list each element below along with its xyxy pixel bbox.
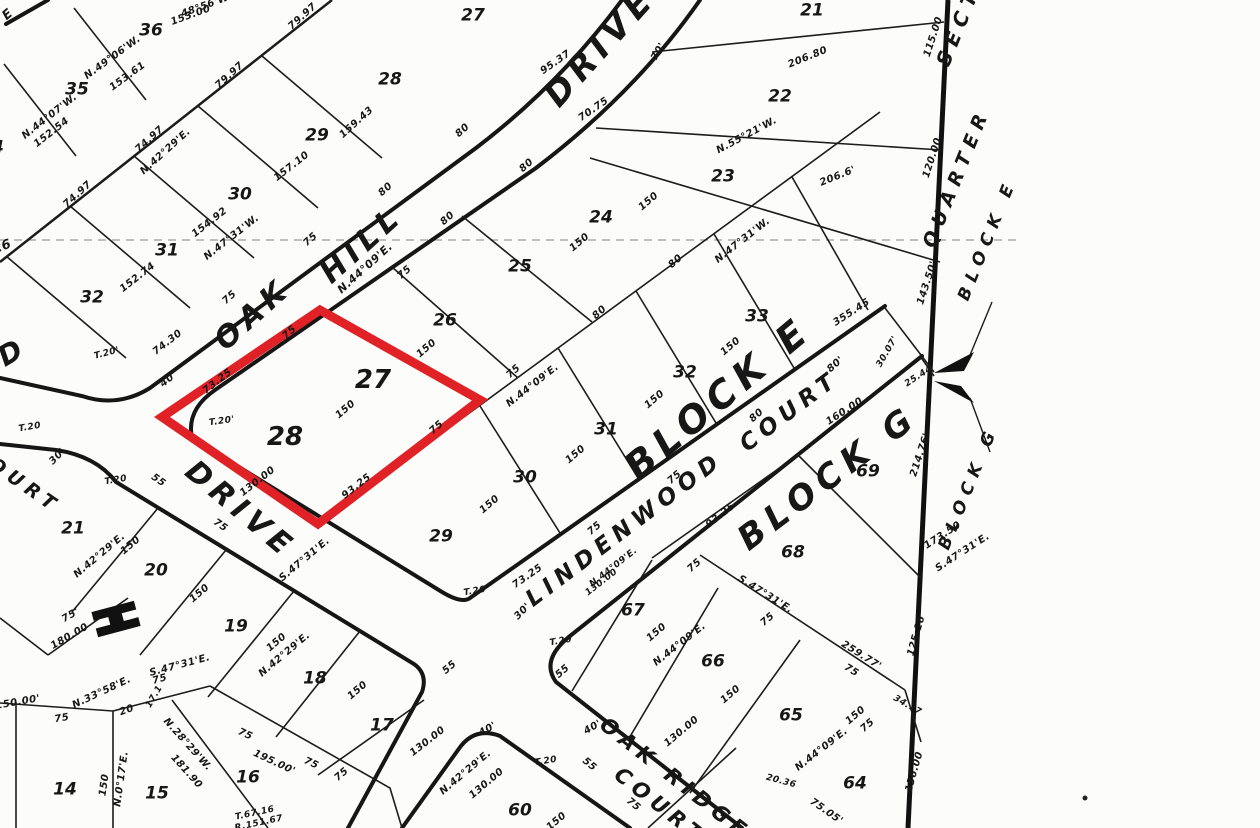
- survey-annotation: 40': [159, 370, 180, 389]
- lot-number: 26: [433, 313, 457, 330]
- lot-number: 66: [701, 654, 725, 671]
- lot-number: 67: [621, 603, 645, 620]
- survey-annotation: N.44°09'E.: [794, 726, 850, 773]
- survey-annotation: 80: [518, 157, 536, 174]
- lot-number: 68: [781, 545, 805, 562]
- lot-number: 64: [843, 776, 867, 793]
- survey-annotation: N.42°29'E.: [72, 532, 127, 581]
- lot-number: 30: [228, 187, 252, 204]
- survey-annotation: 74.97: [62, 180, 94, 210]
- lot-number: 17: [370, 718, 394, 735]
- survey-annotation: 79.97: [287, 2, 319, 32]
- survey-annotation: T.20': [209, 416, 236, 429]
- survey-annotation: 80: [591, 304, 609, 321]
- survey-annotation: T.20: [534, 756, 558, 769]
- survey-annotation: 70': [650, 41, 668, 62]
- survey-annotation: 160.00: [825, 396, 865, 427]
- lot-number: 65: [779, 708, 803, 725]
- survey-annotation: 80: [439, 210, 457, 227]
- lot-number: 60: [508, 803, 532, 820]
- survey-annotation: 75: [151, 673, 168, 687]
- quarter-section-label: SECT: [933, 0, 983, 69]
- survey-annotation: 150: [415, 338, 439, 360]
- survey-annotation: 206.6': [819, 165, 858, 188]
- survey-annotation: 150: [643, 389, 667, 411]
- survey-annotation: N.0°17'E.: [113, 750, 131, 807]
- survey-annotation: 75: [859, 717, 877, 734]
- survey-annotation: 75: [281, 324, 299, 341]
- survey-annotation: 40': [477, 721, 498, 739]
- survey-annotation: 159.43: [338, 105, 376, 140]
- survey-annotation: 25.44: [904, 365, 935, 389]
- survey-annotation: 30': [48, 447, 68, 467]
- survey-annotation: 157.10: [273, 150, 312, 183]
- survey-annotation: 143.50': [916, 260, 939, 306]
- survey-annotation: 150: [346, 680, 370, 702]
- street-name-oak-hill: OAK: [210, 274, 297, 356]
- survey-annotation: 75: [505, 363, 523, 380]
- survey-annotation: 73.25: [201, 368, 234, 397]
- lot-number: 20: [144, 563, 168, 580]
- survey-annotation: 75: [302, 231, 320, 248]
- survey-annotation: 125.16: [906, 615, 927, 658]
- lot-number: 69: [856, 464, 880, 481]
- lot-number: 14: [53, 782, 77, 799]
- survey-annotation: 150: [564, 444, 588, 466]
- survey-annotation: 20.36: [765, 774, 797, 791]
- lot-number: 26: [0, 238, 13, 256]
- lot-number: 25: [508, 259, 532, 276]
- lot-number: 15: [145, 786, 169, 803]
- survey-annotation: 80': [826, 355, 846, 375]
- survey-annotation: 75: [396, 264, 414, 281]
- block-e-pointer-label: BLOCK E: [956, 177, 1020, 304]
- survey-annotation: 55: [554, 663, 572, 680]
- survey-annotation: 136.00: [904, 751, 925, 794]
- survey-annotation: 75: [333, 766, 351, 783]
- lot-number: 36: [139, 23, 163, 40]
- survey-annotation: T.20: [549, 636, 573, 649]
- survey-annotation: 75: [428, 419, 446, 436]
- survey-annotation: 150: [188, 583, 212, 605]
- street-name-fragment: D: [0, 333, 33, 372]
- lot-number: 21: [61, 521, 85, 538]
- survey-annotation: 79.97: [214, 61, 246, 91]
- survey-annotation: N.47°31'W.: [714, 216, 773, 265]
- label-layer: OAKHILLDRIVEDRIVELINDENWOODCOURTOAK RIDG…: [0, 0, 1260, 828]
- survey-annotation: 120.00: [922, 137, 944, 180]
- survey-annotation: 75: [759, 611, 777, 628]
- lot-number: 29: [429, 529, 453, 546]
- street-name-lindenwood: LINDENWOOD: [522, 449, 728, 612]
- lot-number: 28: [378, 72, 402, 89]
- survey-annotation: 150: [568, 232, 592, 254]
- survey-annotation: 75': [60, 607, 81, 625]
- survey-annotation: 180.00: [49, 622, 90, 651]
- survey-annotation: 130.00: [663, 715, 701, 749]
- survey-annotation: 150: [545, 811, 569, 828]
- survey-annotation: 74.30: [151, 329, 184, 358]
- survey-annotation: S.47°31'E.: [736, 574, 794, 616]
- survey-annotation: 152.74: [119, 261, 158, 294]
- survey-annotation: 17.1: [145, 684, 165, 709]
- survey-annotation: 150: [645, 622, 669, 644]
- survey-annotation: 150: [719, 684, 743, 706]
- survey-annotation: 55: [149, 473, 167, 490]
- survey-annotation: 70.75: [577, 96, 611, 124]
- plat-map-canvas: OAKHILLDRIVEDRIVELINDENWOODCOURTOAK RIDG…: [0, 0, 1260, 828]
- lot-number: 19: [224, 619, 248, 636]
- lot-number: 29: [305, 128, 329, 145]
- survey-annotation: 30': [513, 602, 533, 622]
- survey-annotation: 150: [334, 399, 358, 421]
- street-name-fragment: E: [0, 3, 20, 23]
- survey-annotation: 80: [454, 122, 472, 139]
- lot-number: 21: [800, 3, 824, 20]
- survey-annotation: 30.07': [876, 335, 901, 369]
- lot-number: 34: [0, 140, 4, 157]
- highlighted-lot-number: 27: [355, 367, 391, 393]
- survey-annotation: 75: [54, 713, 70, 725]
- survey-annotation: T.20: [104, 475, 128, 488]
- survey-annotation: T.20: [463, 586, 487, 599]
- survey-annotation: 34.77: [891, 694, 922, 717]
- survey-annotation: 75: [686, 557, 704, 574]
- lot-number: 31: [594, 422, 618, 439]
- street-name-drive-lower: DRIVE: [179, 456, 300, 564]
- survey-annotation: 75: [302, 756, 320, 771]
- lot-number: 30: [513, 470, 537, 487]
- survey-annotation: T.20': [93, 346, 120, 361]
- survey-annotation: 80: [377, 181, 395, 198]
- survey-annotation: 150: [98, 773, 111, 797]
- survey-annotation: 20: [118, 704, 135, 719]
- lot-number: 31: [155, 243, 179, 260]
- lot-number: 24: [589, 210, 613, 227]
- lot-number: 16: [236, 770, 260, 787]
- survey-annotation: 150.00': [0, 694, 41, 712]
- survey-annotation: 150: [637, 191, 661, 213]
- survey-annotation: 130.00: [239, 465, 278, 498]
- lot-number: 18: [303, 671, 327, 688]
- survey-annotation: 355.45: [832, 297, 872, 328]
- survey-annotation: 80: [667, 253, 685, 270]
- survey-annotation: 93.25: [340, 473, 373, 502]
- survey-annotation: 55: [441, 659, 459, 676]
- survey-annotation: 206.80: [787, 46, 829, 71]
- survey-annotation: 75: [236, 727, 254, 742]
- highlighted-lot-number: 28: [267, 424, 303, 450]
- survey-annotation: 130.00: [409, 725, 448, 758]
- survey-annotation: T.20: [18, 422, 42, 435]
- lot-number: 33: [745, 309, 769, 326]
- survey-annotation: 150: [478, 494, 502, 516]
- lot-number: 27: [461, 8, 485, 25]
- survey-annotation: 75: [842, 663, 860, 679]
- lot-number: 23: [711, 169, 735, 186]
- survey-annotation: 55: [580, 756, 598, 773]
- survey-annotation: N.55°21'W.: [715, 116, 779, 156]
- survey-annotation: 154.92: [191, 206, 230, 239]
- survey-annotation: 153.61: [108, 61, 148, 94]
- lot-number: 22: [768, 89, 792, 106]
- survey-annotation: 75.05': [808, 797, 845, 827]
- lot-number: 32: [80, 290, 104, 307]
- lot-number: 32: [673, 365, 697, 382]
